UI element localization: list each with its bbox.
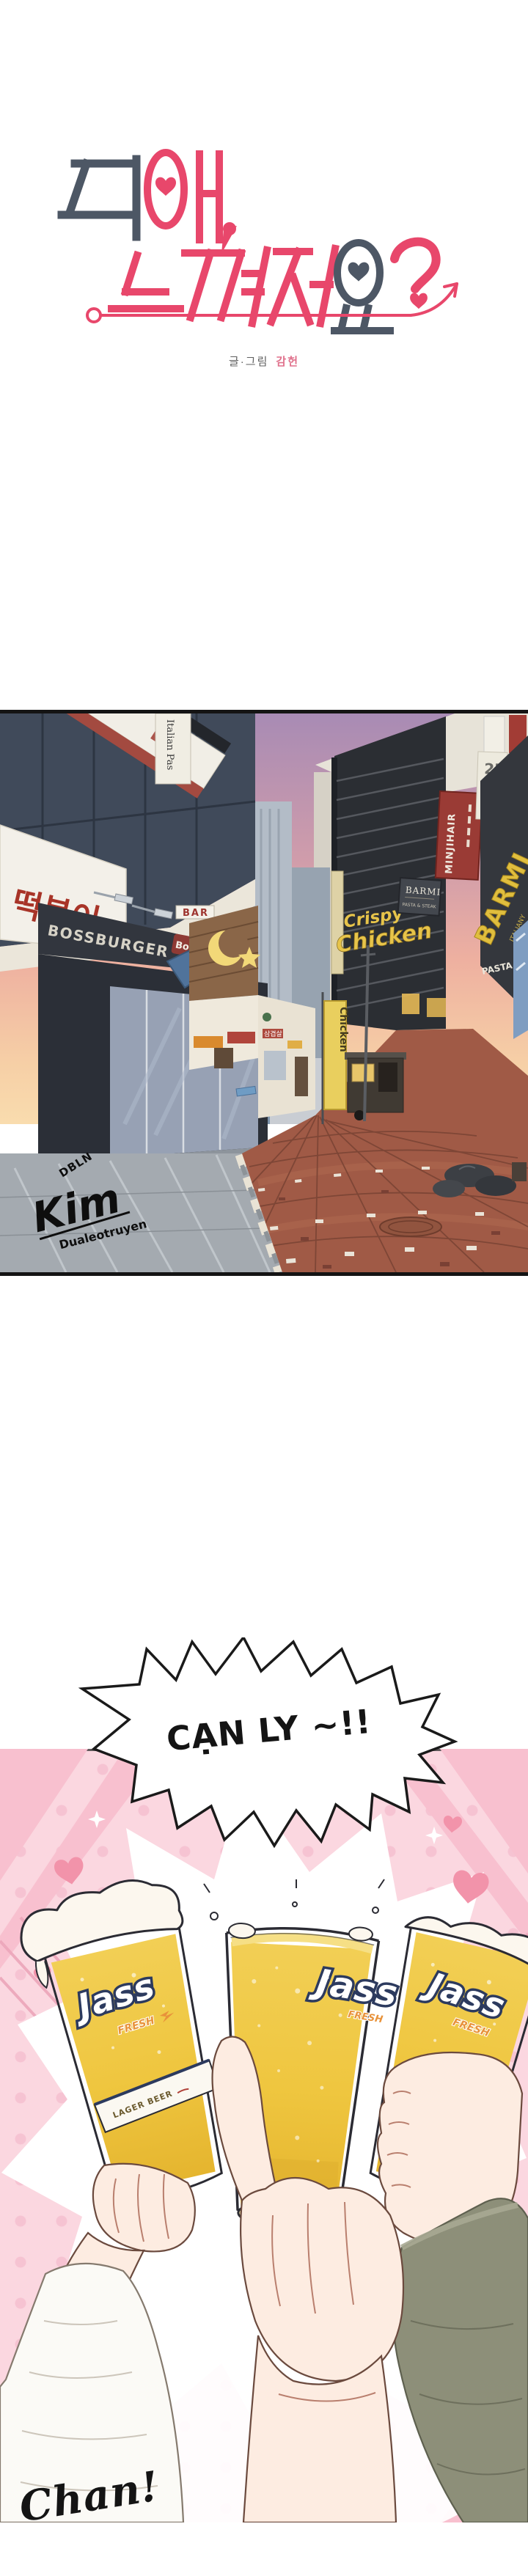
heart-icon bbox=[348, 263, 370, 282]
author-credit: 글·그림감헌 bbox=[0, 353, 528, 369]
speech-bubble: CẠN LY ~!! bbox=[0, 1637, 528, 1879]
minjihair-sign: MINJIHAIR bbox=[436, 791, 483, 880]
food-cart bbox=[345, 1052, 406, 1120]
credit-label: 글·그림 bbox=[229, 356, 268, 368]
title-char-dwi bbox=[62, 159, 136, 237]
samgyeopsal-text: 삼겹살 bbox=[264, 1030, 282, 1038]
bar-sign: BAR bbox=[176, 906, 214, 919]
credit-name: 감헌 bbox=[276, 356, 299, 368]
chicken-banner-text: Chicken bbox=[337, 1007, 349, 1052]
italian-pasta-banner: Italian Pas bbox=[155, 713, 191, 784]
title-question-mark bbox=[395, 242, 436, 309]
title-logo: 뒤에, 느껴져요? bbox=[29, 139, 499, 345]
street-scene: Italian Pas 떡볶이 BOSSBURGER Bo B bbox=[0, 713, 528, 1272]
chicken-building: Crispy Chicken bbox=[331, 716, 446, 1030]
title-chars-neukkyeojyeo bbox=[111, 249, 335, 323]
webtoon-page: 뒤에, 느껴져요? bbox=[0, 0, 528, 2576]
beer-foam bbox=[348, 1927, 373, 1942]
manhole bbox=[380, 1217, 441, 1236]
heart-icon bbox=[155, 177, 176, 196]
panel-border-bottom bbox=[0, 1272, 528, 1276]
title-char-yo bbox=[334, 243, 390, 331]
bar-text: BAR bbox=[183, 908, 209, 919]
italian-pasta-text: Italian Pas bbox=[164, 719, 175, 770]
title-char-e bbox=[147, 153, 237, 254]
heart-icon bbox=[410, 293, 428, 309]
